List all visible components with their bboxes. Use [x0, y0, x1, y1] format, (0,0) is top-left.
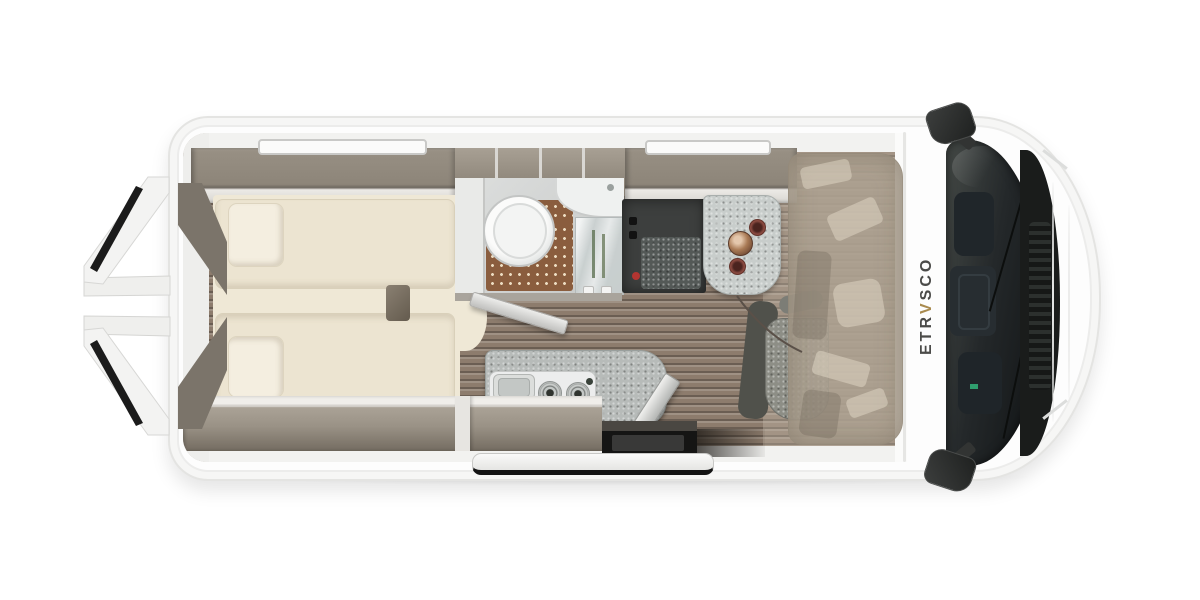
floor-cable	[737, 296, 802, 352]
brand-accent-letter: V	[918, 300, 935, 314]
dashboard-steering	[950, 266, 996, 336]
windshield-reflection	[952, 146, 1012, 188]
brand-logo: ETRVSCO	[905, 248, 949, 363]
brand-suffix: SCO	[918, 256, 935, 300]
steering-wheel	[958, 274, 990, 330]
hood-crease	[1068, 205, 1070, 400]
grille-slots	[1029, 222, 1051, 390]
rear-door-wedge-top	[178, 183, 227, 295]
floorplan-canvas: ETRVSCO	[0, 0, 1200, 600]
cab-seat-driver	[954, 192, 994, 256]
hood-crease	[1052, 182, 1054, 422]
rear-door-wedge-bottom	[178, 317, 227, 429]
cab-seat-passenger	[958, 352, 1002, 414]
brand-prefix: ETR	[918, 314, 935, 355]
dash-indicator	[970, 384, 978, 389]
roof-skylight-front	[645, 140, 771, 155]
sliding-door-rail	[472, 453, 714, 475]
roof-skylight-rear	[258, 139, 427, 155]
